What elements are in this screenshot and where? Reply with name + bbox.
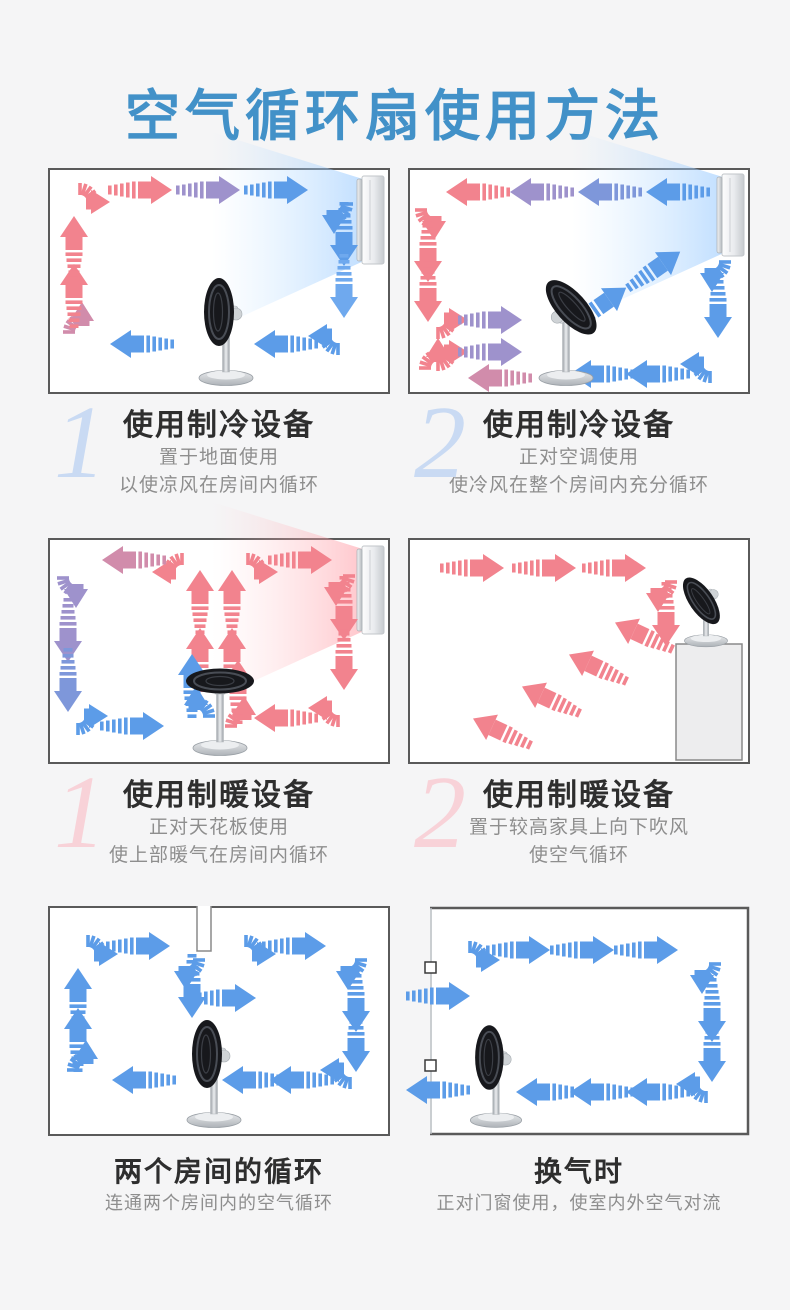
section-title: 换气时	[408, 1150, 750, 1190]
caption: 1 使用制冷设备 置于地面使用 以使凉风在房间内循环	[48, 400, 390, 499]
caption: 换气时 正对门窗使用，使室内外空气对流	[408, 1150, 750, 1216]
caption: 两个房间的循环 连通两个房间内的空气循环	[48, 1150, 390, 1216]
caption: 2 使用制冷设备 正对空调使用 使冷风在整个房间内充分循环	[408, 400, 750, 499]
section-cooling-2: 2 使用制冷设备 正对空调使用 使冷风在整个房间内充分循环	[408, 168, 750, 499]
step-number: 1	[54, 394, 106, 493]
section-heating-1: 1 使用制暖设备 正对天花板使用 使上部暖气在房间内循环	[48, 538, 390, 869]
panel-illustration-ventilation	[408, 906, 750, 1136]
room-partition-wall	[197, 906, 211, 951]
section-cooling-1: 1 使用制冷设备 置于地面使用 以使凉风在房间内循环	[48, 168, 390, 499]
page-title: 空气循环扇使用方法	[0, 71, 790, 151]
section-ventilation: 换气时 正对门窗使用，使室内外空气对流	[408, 906, 750, 1216]
panel-illustration-heating-ceiling	[48, 538, 390, 764]
step-number: 1	[54, 764, 106, 863]
section-subtitle: 正对门窗使用，使室内外空气对流	[408, 1190, 750, 1216]
section-title: 两个房间的循环	[48, 1150, 390, 1190]
step-number: 2	[414, 764, 466, 863]
section-two-rooms: 两个房间的循环 连通两个房间内的空气循环	[48, 906, 390, 1216]
step-number: 2	[414, 394, 466, 493]
panel-illustration-two-rooms	[48, 906, 390, 1136]
panel-illustration-cooling-facing-ac	[408, 168, 750, 394]
section-heating-2: 2 使用制暖设备 置于较高家具上向下吹风 使空气循环	[408, 538, 750, 869]
section-subtitle: 连通两个房间内的空气循环	[48, 1190, 390, 1216]
tall-furniture	[676, 644, 742, 760]
caption: 1 使用制暖设备 正对天花板使用 使上部暖气在房间内循环	[48, 770, 390, 869]
panel-illustration-cooling-floor	[48, 168, 390, 394]
door-handle	[425, 1060, 436, 1071]
panel-illustration-heating-furniture	[408, 538, 750, 764]
caption: 2 使用制暖设备 置于较高家具上向下吹风 使空气循环	[408, 770, 750, 869]
door-handle	[425, 962, 436, 973]
